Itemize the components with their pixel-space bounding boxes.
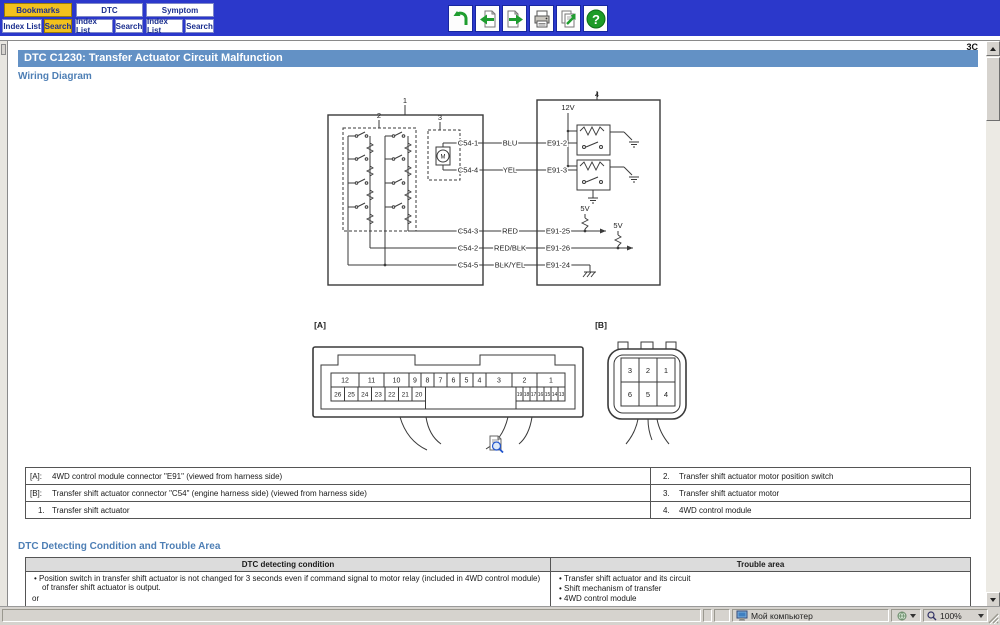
svg-text:5: 5 [646,390,650,399]
block-4-label: 4 [595,90,599,99]
print-button[interactable] [529,5,554,32]
svg-text:18: 18 [524,392,530,398]
button-label: Index List [147,17,182,35]
zoom-dropdown-caret-icon [978,614,984,618]
status-zone-pane: Мой компьютер [732,609,889,622]
svg-text:17: 17 [531,392,537,398]
legend-text: 4WD control module connector "E91" (view… [52,472,282,481]
pin-label: C54-5 [458,261,478,270]
sidebar-splitter [0,41,8,607]
help-icon: ? [585,8,607,30]
symptom-search-button[interactable]: Search [185,19,214,33]
svg-text:2: 2 [523,378,527,385]
legend-label: 2. [663,472,679,481]
svg-text:12: 12 [341,378,349,385]
legend-label: [A]: [30,472,52,481]
legend-text: Transfer shift actuator motor [679,489,779,498]
svg-text:6: 6 [452,378,456,385]
document-frame: 3C DTC C1230: Transfer Actuator Circuit … [8,41,986,607]
svg-text:1: 1 [664,366,668,375]
pin-label: C54-1 [458,139,478,148]
trouble-item: Shift mechanism of transfer [555,584,966,593]
voltage-5v-label-b: 5V [613,221,622,230]
module-pin-label: E91-26 [546,244,570,253]
tab-symptom-label: Symptom [162,6,198,15]
svg-text:21: 21 [402,392,410,399]
trouble-item: Transfer shift actuator and its circuit [555,574,966,583]
undo-button[interactable] [448,5,473,32]
connector-legend-table: [A]:4WD control module connector "E91" (… [25,467,971,519]
svg-text:20: 20 [415,392,423,399]
trouble-item: 4WD control module [555,594,966,603]
module-pin-label: E91-25 [546,227,570,236]
tab-symptom[interactable]: Symptom [146,3,214,17]
export-button[interactable] [556,5,581,32]
svg-text:4: 4 [478,378,482,385]
svg-text:23: 23 [375,392,383,399]
svg-text:2: 2 [646,366,650,375]
dtc-search-button[interactable]: Search [115,19,143,33]
legend-text: Transfer shift actuator [52,506,130,515]
legend-cell: 4.4WD control module [651,502,971,519]
zoom-figure-icon[interactable] [489,435,505,453]
button-label: Search [116,22,143,31]
magnifier-icon [927,611,937,621]
zoom-level-pane[interactable]: 100% [923,609,988,622]
status-zone-label: Мой компьютер [751,611,813,621]
legend-text: 4WD control module [679,506,751,515]
tab-bookmarks-label: Bookmarks [16,6,60,15]
down-arrow-icon [990,598,996,602]
next-page-icon [505,9,525,29]
svg-text:15: 15 [545,392,551,398]
protected-mode-pane[interactable] [891,609,921,622]
legend-cell: [B]:Transfer shift actuator connector "C… [26,485,651,502]
legend-label: [B]: [30,489,52,498]
section-heading-wiring-diagram: Wiring Diagram [18,71,92,82]
export-page-icon [559,9,579,29]
legend-text: Transfer shift actuator connector "C54" … [52,489,367,498]
security-zone-icon [897,611,907,621]
dtc-index-list-button[interactable]: Index List [75,19,113,33]
svg-text:26: 26 [334,392,342,399]
voltage-5v-label-a: 5V [580,204,589,213]
button-label: Search [45,22,72,31]
svg-text:11: 11 [368,378,375,385]
svg-text:19: 19 [517,392,523,398]
splitter-collapse-button[interactable] [1,44,6,55]
button-label: Search [186,22,213,31]
legend-label: 1. [30,506,52,515]
block-3-label: 3 [438,113,442,122]
undo-arrow-icon [451,9,471,29]
svg-text:3: 3 [497,378,501,385]
my-computer-icon [736,610,748,621]
svg-text:10: 10 [393,378,401,385]
dtc-condition-header: DTC detecting condition [26,558,551,572]
svg-text:14: 14 [552,392,558,398]
pin-label: C54-4 [458,166,478,175]
trouble-area-header: Trouble area [551,558,971,572]
svg-text:4: 4 [664,390,668,399]
section-heading-dtc-detecting: DTC Detecting Condition and Trouble Area [18,541,220,552]
legend-label: 4. [663,506,679,515]
dtc-condition-table: DTC detecting condition Trouble area Pos… [25,557,971,607]
status-bar: Мой компьютер 100% [0,607,1000,625]
legend-cell: 3.Transfer shift actuator motor [651,485,971,502]
previous-page-button[interactable] [475,5,500,32]
module-pin-label: E91-24 [546,261,570,270]
scroll-down-button[interactable] [986,592,1000,607]
svg-text:24: 24 [361,392,369,399]
module-pin-label: E91-3 [547,166,567,175]
bookmarks-index-list-button[interactable]: Index List [2,19,42,33]
wire-color-label: BLU [503,139,518,148]
legend-text: Transfer shift actuator motor position s… [679,472,833,481]
button-label: Index List [3,22,40,31]
condition-item: Position switch in transfer shift actuat… [30,574,546,592]
next-page-button[interactable] [502,5,527,32]
svg-text:25: 25 [348,392,356,399]
resize-grip[interactable] [986,611,999,624]
zone-dropdown-caret-icon [910,614,916,618]
svg-text:9: 9 [413,378,417,385]
up-arrow-icon [990,47,996,51]
legend-row: [B]:Transfer shift actuator connector "C… [26,485,971,502]
legend-cell: 2.Transfer shift actuator motor position… [651,468,971,485]
voltage-12v-label: 12V [561,103,574,112]
status-spacer-pane [703,609,712,622]
tab-dtc[interactable]: DTC [76,3,143,17]
connector-a-bottom-left-pin-numbers: 2625 2423 2221 20 [334,392,423,399]
svg-text:16: 16 [538,392,544,398]
legend-label: 3. [663,489,679,498]
connector-b-label: [B] [595,320,607,330]
previous-page-icon [478,9,498,29]
vertical-scrollbar[interactable] [986,41,1000,607]
module-pin-label: E91-2 [547,139,567,148]
connector-a-bottom-right-pin-numbers: 1918 1716 1514 13 [517,392,565,398]
top-header: Bookmarks DTC Symptom Index List Search … [0,0,1000,36]
pin-label: C54-3 [458,227,478,236]
tab-dtc-label: DTC [101,6,117,15]
svg-text:7: 7 [439,378,443,385]
condition-or: or [30,594,546,603]
svg-text:1: 1 [549,378,553,385]
scrollbar-thumb[interactable] [986,57,1000,121]
svg-text:8: 8 [426,378,430,385]
motor-symbol-label: M [441,155,446,161]
wire-color-label: RED/BLK [494,244,526,253]
wire-color-label: BLK/YEL [495,261,525,270]
svg-text:?: ? [592,12,600,27]
svg-text:6: 6 [628,390,632,399]
svg-text:22: 22 [388,392,396,399]
svg-text:5: 5 [465,378,469,385]
status-spacer-pane [714,609,730,622]
bookmarks-search-button[interactable]: Search [44,19,72,33]
wiring-diagram-schematic: 1 2 3 4 M 12V 5V 5V C54-1 BLU E91-2 C54-… [300,90,700,305]
pin-label: C54-2 [458,244,478,253]
trouble-area-cell: Transfer shift actuator and its circuit … [551,572,971,608]
scroll-up-button[interactable] [986,41,1000,56]
block-2-label: 2 [377,111,381,120]
block-1-label: 1 [403,96,407,105]
legend-row: [A]:4WD control module connector "E91" (… [26,468,971,485]
dtc-table-body-row: Position switch in transfer shift actuat… [26,572,971,608]
dtc-table-header-row: DTC detecting condition Trouble area [26,558,971,572]
button-label: Index List [76,17,112,35]
help-button[interactable]: ? [583,5,608,32]
svg-text:3: 3 [628,366,632,375]
wire-color-label: YEL [503,166,517,175]
legend-cell: [A]:4WD control module connector "E91" (… [26,468,651,485]
status-message-pane [2,609,701,622]
symptom-index-list-button[interactable]: Index List [146,19,183,33]
svg-text:13: 13 [559,392,565,398]
tab-bookmarks[interactable]: Bookmarks [4,3,72,17]
connector-a-label: [A] [314,320,326,330]
legend-row: 1.Transfer shift actuator 4.4WD control … [26,502,971,519]
wire-color-label: RED [502,227,518,236]
page-title: DTC C1230: Transfer Actuator Circuit Mal… [18,50,978,67]
application-window: Bookmarks DTC Symptom Index List Search … [0,0,1000,625]
legend-cell: 1.Transfer shift actuator [26,502,651,519]
dtc-condition-cell: Position switch in transfer shift actuat… [26,572,551,608]
zoom-level-value: 100% [940,611,962,621]
printer-icon [532,9,552,29]
